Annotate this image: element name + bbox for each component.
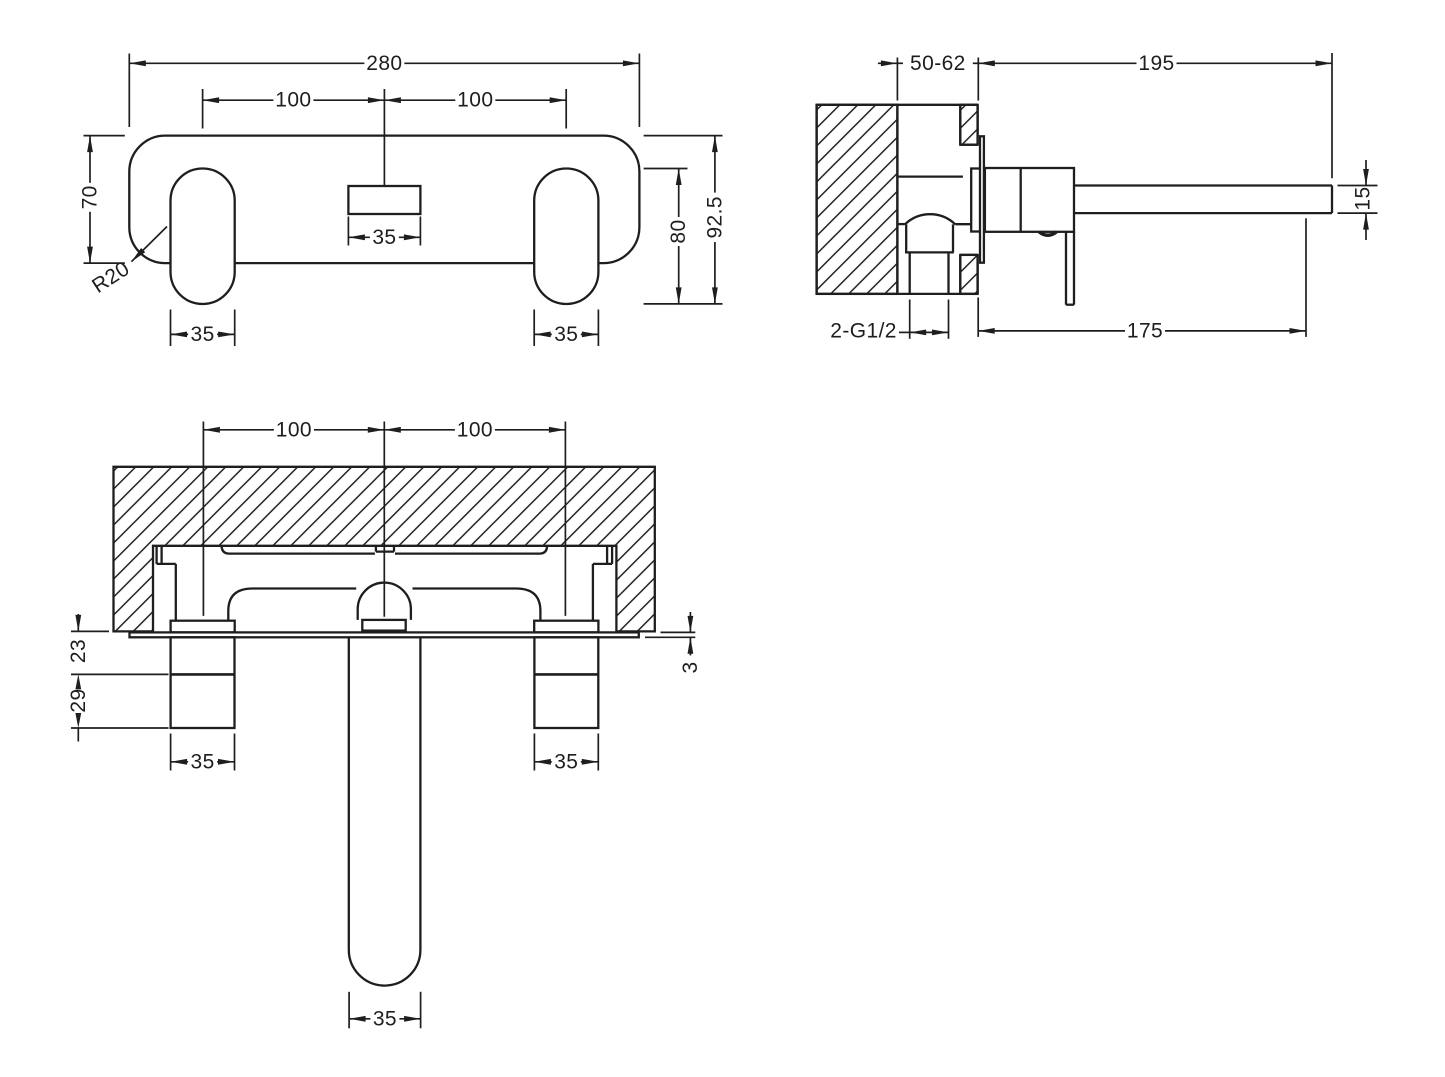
svg-text:35: 35 (373, 1007, 397, 1030)
svg-text:100: 100 (457, 418, 493, 441)
svg-text:35: 35 (191, 323, 215, 346)
svg-text:175: 175 (1127, 319, 1163, 342)
svg-text:100: 100 (275, 89, 311, 112)
svg-text:15: 15 (1352, 186, 1375, 210)
svg-text:100: 100 (457, 89, 493, 112)
svg-text:29: 29 (67, 688, 90, 712)
svg-text:280: 280 (366, 52, 402, 75)
svg-text:35: 35 (372, 226, 396, 249)
svg-text:23: 23 (67, 639, 90, 663)
svg-text:50-62: 50-62 (910, 52, 966, 75)
svg-text:195: 195 (1138, 52, 1174, 75)
svg-text:3: 3 (679, 661, 702, 673)
svg-text:35: 35 (554, 323, 578, 346)
svg-text:100: 100 (276, 418, 312, 441)
svg-text:92.5: 92.5 (703, 196, 726, 238)
svg-text:35: 35 (191, 750, 215, 773)
svg-text:70: 70 (79, 185, 102, 209)
svg-text:2-G1/2: 2-G1/2 (830, 319, 897, 342)
svg-text:35: 35 (554, 750, 578, 773)
svg-text:80: 80 (667, 219, 690, 243)
